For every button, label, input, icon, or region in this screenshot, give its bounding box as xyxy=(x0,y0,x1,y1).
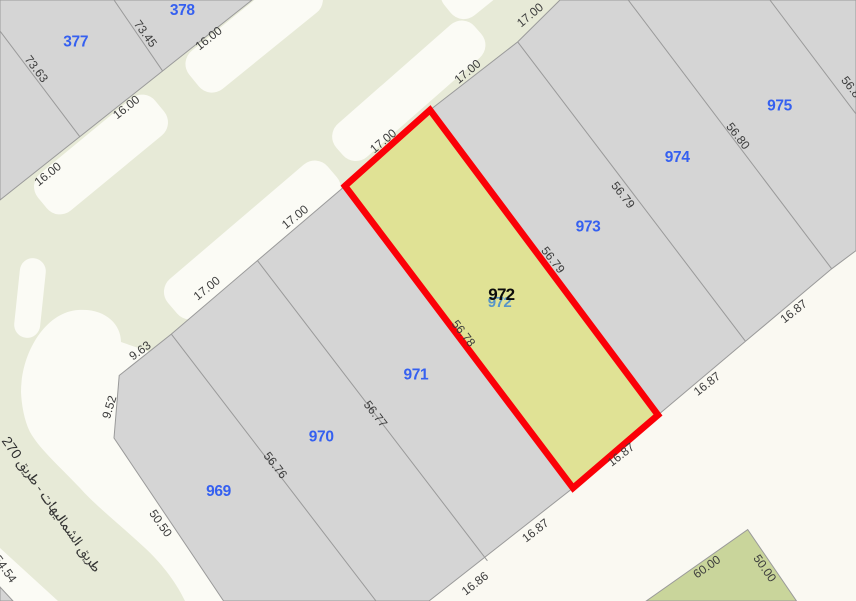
svg-text:975: 975 xyxy=(767,98,793,115)
svg-text:971: 971 xyxy=(403,367,429,384)
svg-text:973: 973 xyxy=(576,219,602,236)
svg-text:974: 974 xyxy=(665,149,691,166)
svg-text:969: 969 xyxy=(206,483,232,500)
svg-text:972: 972 xyxy=(488,285,514,304)
svg-text:378: 378 xyxy=(170,2,196,19)
svg-text:970: 970 xyxy=(309,429,334,446)
svg-text:377: 377 xyxy=(63,34,88,51)
